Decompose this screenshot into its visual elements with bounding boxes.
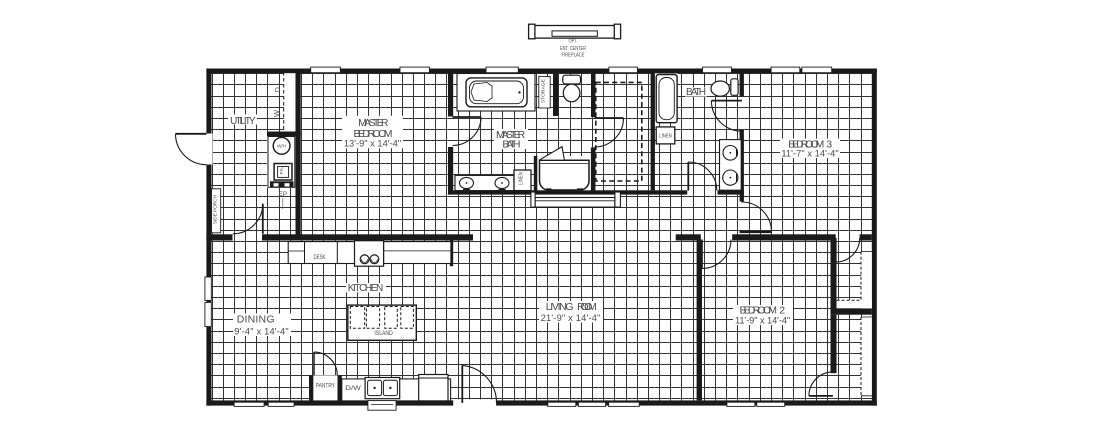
svg-text:KITCHEN: KITCHEN	[348, 283, 383, 294]
svg-text:21'-9" x 14'-4": 21'-9" x 14'-4"	[541, 313, 601, 323]
svg-text:D: D	[273, 87, 282, 93]
svg-text:ROOM: ROOM	[577, 301, 597, 313]
svg-text:FIREPLACE: FIREPLACE	[562, 52, 586, 58]
svg-text:SIDE PORCH: SIDE PORCH	[212, 195, 217, 224]
svg-text:PANTRY: PANTRY	[316, 383, 335, 389]
svg-text:LIVING: LIVING	[546, 301, 574, 313]
svg-text:D/W: D/W	[345, 385, 361, 392]
svg-text:LINEN: LINEN	[519, 172, 525, 185]
svg-text:11'-9" x 14'-4": 11'-9" x 14'-4"	[735, 316, 790, 326]
svg-text:DESK: DESK	[314, 255, 326, 261]
svg-text:DINING: DINING	[237, 313, 275, 325]
svg-text:STORAGE: STORAGE	[541, 79, 546, 103]
svg-text:F/U: F/U	[279, 166, 284, 175]
svg-text:BATH: BATH	[502, 139, 520, 151]
svg-text:ENT. CENTER: ENT. CENTER	[560, 46, 586, 52]
svg-text:OPT.: OPT.	[569, 39, 578, 45]
svg-text:BATH: BATH	[686, 87, 706, 98]
svg-text:13'-9" x 14'-4": 13'-9" x 14'-4"	[344, 139, 401, 149]
svg-text:UTILITY: UTILITY	[230, 116, 256, 127]
svg-text:W: W	[272, 109, 281, 117]
svg-text:LINEN: LINEN	[659, 133, 672, 139]
svg-text:EP: EP	[279, 191, 288, 198]
svg-text:9'-4" x 14'-4": 9'-4" x 14'-4"	[234, 327, 288, 337]
svg-text:W/H: W/H	[277, 144, 286, 149]
svg-text:ISLAND: ISLAND	[374, 330, 393, 337]
svg-text:11'-7" x 14'-4": 11'-7" x 14'-4"	[781, 149, 838, 159]
